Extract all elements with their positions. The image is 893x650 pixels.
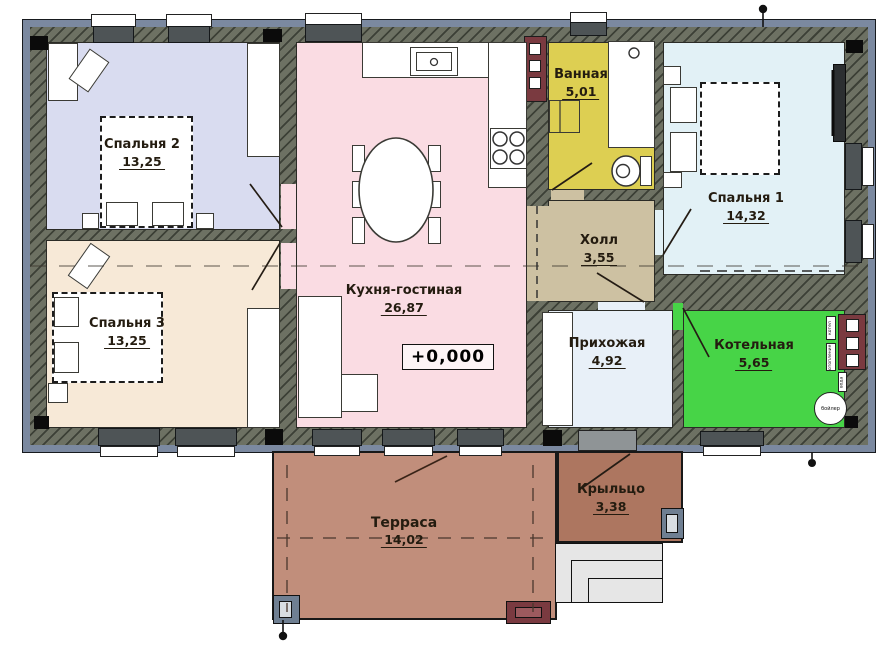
- equipment-flue: [846, 319, 859, 332]
- tv: [833, 64, 846, 142]
- dining-chair: [352, 217, 365, 244]
- label-terrace: Терраса 14,02: [371, 515, 437, 548]
- label-boiler-room: Котельная 5,65: [714, 339, 794, 371]
- window-sill: [314, 446, 360, 456]
- pillow: [670, 87, 697, 123]
- window: [305, 24, 362, 42]
- window-sill: [459, 446, 502, 456]
- terrace-brick-post-inner: [515, 607, 542, 618]
- wall-column: [845, 416, 858, 428]
- nightstand: [82, 213, 99, 229]
- nightstand: [48, 383, 68, 403]
- sofa-back: [298, 296, 342, 418]
- room-name: Спальня 2: [104, 138, 180, 153]
- room-area: 3,38: [593, 500, 630, 515]
- pillow: [106, 202, 138, 226]
- room-name: Крыльцо: [577, 483, 645, 498]
- tag-heating: отопление: [826, 343, 836, 371]
- chimney-flue: [529, 43, 541, 55]
- door-opening: [673, 303, 683, 330]
- tag-water: вода: [838, 372, 847, 392]
- dining-chair: [428, 181, 441, 208]
- label-bathroom: Ванная 5,01: [554, 68, 608, 100]
- toilet-tank: [640, 156, 652, 186]
- washing-machine: [549, 100, 580, 133]
- stove: [490, 128, 527, 169]
- boiler-tank: бойлер: [814, 392, 847, 425]
- nightstand: [663, 66, 681, 85]
- window: [845, 143, 862, 190]
- kitchen-sink-inner: [416, 52, 452, 71]
- french-window: [457, 429, 504, 446]
- wall-column: [34, 416, 49, 429]
- dining-chair: [428, 217, 441, 244]
- room-name: Прихожая: [569, 337, 646, 352]
- window: [700, 431, 764, 446]
- entry-door: [578, 430, 637, 451]
- french-window: [382, 429, 435, 446]
- room-name: Спальня 1: [708, 192, 784, 207]
- wardrobe: [247, 308, 280, 428]
- nightstand: [663, 172, 682, 188]
- tag-boiler: котел: [826, 316, 836, 340]
- door-opening: [598, 302, 645, 310]
- window: [98, 428, 160, 446]
- bed: [700, 82, 780, 175]
- dining-chair: [428, 145, 441, 172]
- door-opening: [281, 243, 296, 289]
- room-area: 14,32: [723, 209, 769, 224]
- room-area: 14,02: [381, 533, 427, 548]
- window: [570, 22, 607, 36]
- sofa-seat: [341, 374, 378, 412]
- label-porch: Крыльцо 3,38: [577, 483, 645, 515]
- room-name: Холл: [580, 234, 618, 249]
- floor-plan: Спальня 2 13,25 Спальня 3 13,25 Кухня-го…: [0, 0, 893, 650]
- wall-column: [265, 429, 283, 445]
- passage-opening: [527, 206, 549, 301]
- equipment-flue: [846, 337, 859, 350]
- door-opening: [281, 184, 296, 229]
- room-area: 5,01: [563, 85, 600, 100]
- chimney-flue: [529, 60, 541, 72]
- label-bedroom3: Спальня 3 13,25: [89, 317, 165, 349]
- door-opening: [551, 190, 584, 200]
- label-bedroom2: Спальня 2 13,25: [104, 138, 180, 170]
- chimney-flue: [529, 77, 541, 89]
- room-area: 3,55: [581, 251, 618, 266]
- label-entry: Прихожая 4,92: [569, 337, 646, 369]
- french-window: [312, 429, 362, 446]
- pillow: [670, 132, 697, 172]
- elevation-mark: +0,000: [402, 344, 494, 370]
- room-name: Ванная: [554, 68, 608, 83]
- bathtub: [608, 41, 655, 148]
- wall-column: [263, 29, 282, 42]
- window-sill: [100, 446, 158, 457]
- window: [175, 428, 237, 446]
- room-area: 26,87: [381, 301, 427, 316]
- window: [168, 26, 210, 43]
- window-sill: [862, 224, 874, 259]
- window-sill: [703, 446, 761, 456]
- room-area: 13,25: [119, 155, 165, 170]
- terrace-post-inner: [279, 601, 292, 618]
- door-opening: [655, 210, 663, 255]
- room-name: Спальня 3: [89, 317, 165, 332]
- equipment-flue: [846, 354, 859, 367]
- room-name: Кухня-гостиная: [346, 284, 462, 299]
- room-area: 4,92: [589, 354, 626, 369]
- axis-pin: [808, 452, 816, 467]
- room-name: Терраса: [371, 515, 437, 531]
- window: [845, 220, 862, 263]
- pillow: [54, 342, 79, 373]
- window-sill: [862, 147, 874, 186]
- nightstand: [196, 213, 214, 229]
- room-name: Котельная: [714, 339, 794, 354]
- dining-chair: [352, 145, 365, 172]
- dining-chair: [352, 181, 365, 208]
- window: [93, 26, 134, 43]
- pillow: [54, 297, 79, 327]
- room-area: 13,25: [104, 334, 150, 349]
- label-hall: Холл 3,55: [580, 234, 618, 266]
- window-sill: [177, 446, 235, 457]
- label-bedroom1: Спальня 1 14,32: [708, 192, 784, 224]
- label-kitchen: Кухня-гостиная 26,87: [346, 284, 462, 316]
- room-area: 5,65: [736, 356, 773, 371]
- pillow: [152, 202, 184, 226]
- window-sill: [384, 446, 433, 456]
- wardrobe: [247, 43, 280, 157]
- porch-post-inner: [666, 514, 678, 533]
- wall-column: [846, 40, 863, 53]
- wall-column: [30, 36, 48, 50]
- porch-step: [588, 578, 663, 603]
- wall-column: [543, 430, 562, 446]
